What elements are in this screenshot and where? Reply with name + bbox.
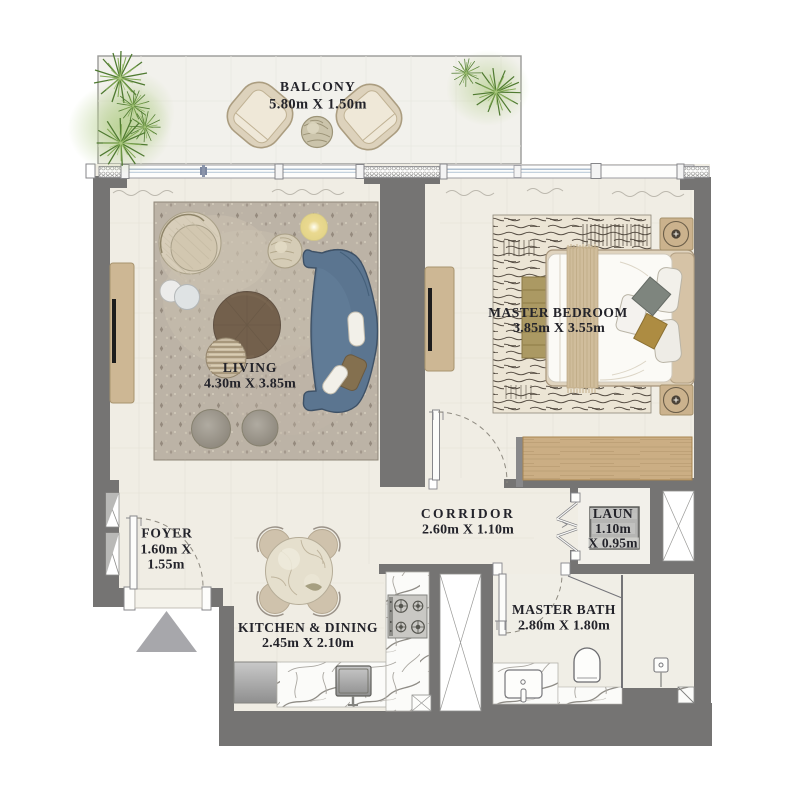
svg-text:3.85m X 3.55m: 3.85m X 3.55m <box>513 321 605 336</box>
svg-text:MASTER BEDROOM: MASTER BEDROOM <box>488 305 627 320</box>
svg-text:1.10m: 1.10m <box>595 521 631 536</box>
svg-text:KITCHEN & DINING: KITCHEN & DINING <box>238 620 378 635</box>
svg-text:FOYER: FOYER <box>141 526 192 541</box>
svg-text:MASTER BATH: MASTER BATH <box>512 602 616 617</box>
svg-text:2.80m X 1.80m: 2.80m X 1.80m <box>518 619 610 634</box>
svg-text:LIVING: LIVING <box>223 360 277 375</box>
svg-text:4.30m X 3.85m: 4.30m X 3.85m <box>204 377 296 392</box>
svg-text:1.55m: 1.55m <box>147 558 184 573</box>
svg-text:BALCONY: BALCONY <box>280 79 356 94</box>
svg-text:CORRIDOR: CORRIDOR <box>421 506 515 521</box>
svg-text:5.80m X 1.50m: 5.80m X 1.50m <box>269 97 367 113</box>
svg-text:1.60m X: 1.60m X <box>140 543 191 558</box>
svg-text:2.60m X 1.10m: 2.60m X 1.10m <box>422 523 514 538</box>
svg-text:X 0.95m: X 0.95m <box>588 536 638 551</box>
svg-text:2.45m X 2.10m: 2.45m X 2.10m <box>262 636 354 651</box>
svg-text:LAUN: LAUN <box>593 506 633 521</box>
